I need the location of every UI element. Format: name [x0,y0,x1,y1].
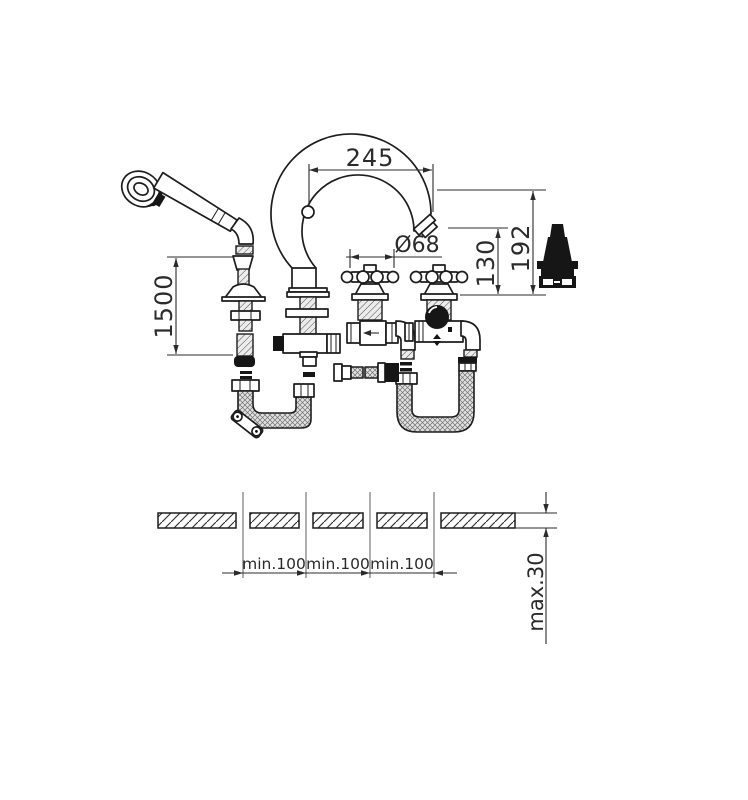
cross-handle-valve-right [405,265,480,371]
hose-ferrule [234,356,255,367]
dim-label-192: 192 [507,224,535,273]
dim-label-130: 130 [472,239,500,288]
hose-connectors [334,363,399,382]
dim-label-pitch-1: min.100 [242,555,306,573]
shower-hose [230,384,314,439]
valve-elbow [461,321,480,350]
shower-handle [154,173,239,234]
dim-hole-pitch: min.100 min.100 min.100 [222,555,457,576]
dim-hose-length: 1500 [150,257,233,355]
dim-label-68: Ø68 [394,233,439,258]
diverter-tee [283,334,327,353]
dim-label-pitch-3: min.100 [370,555,434,573]
spout-under-deck [273,297,340,377]
spout-knob [302,206,314,218]
dim-label-1500: 1500 [150,273,178,338]
diverter-knob [425,305,449,329]
shower-holder [222,256,265,391]
shower-elbow-nut [236,246,253,254]
dim-outlet-height: 130 [448,228,508,294]
dim-label-max30: max.30 [524,552,548,631]
dim-label-pitch-2: min.100 [306,555,370,573]
dim-handle-diameter: Ø68 [346,233,442,268]
bath-mixer-installation-diagram: 245 192 130 Ø68 1500 min. [0,0,748,800]
holder-cone [233,256,253,270]
cartridge-silhouette [537,224,578,288]
technical-drawing-page: 245 192 130 Ø68 1500 min. [0,0,748,800]
hand-shower [115,164,253,254]
dim-deck-thickness: max.30 [515,492,557,644]
dim-label-245: 245 [346,144,395,172]
